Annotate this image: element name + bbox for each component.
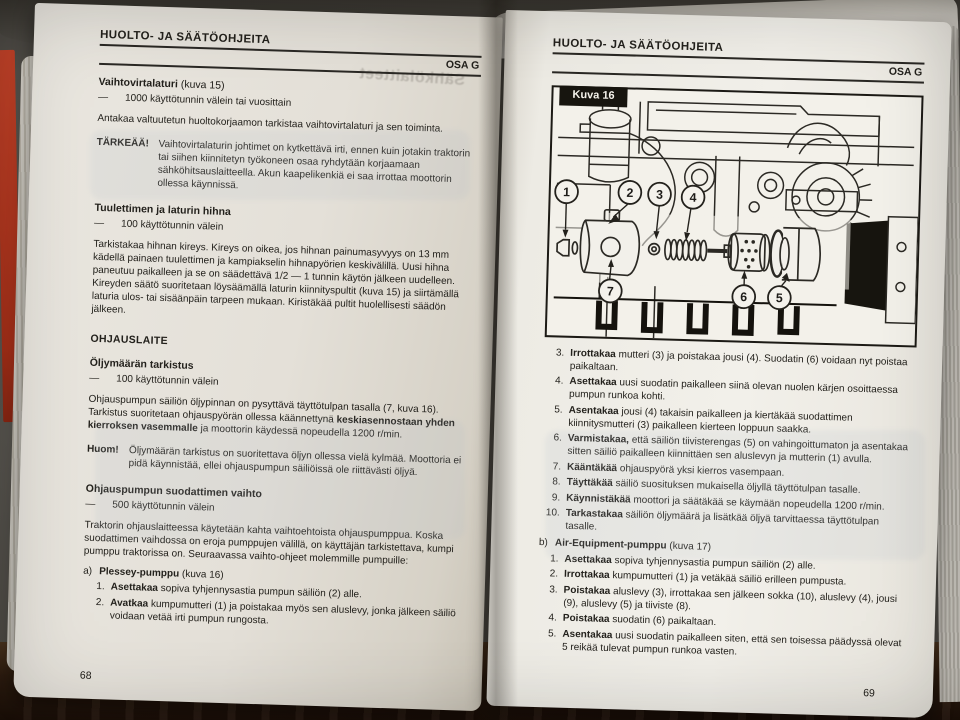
callout-1-number: 1	[563, 185, 570, 199]
paragraph: Tarkistakaa hihnan kireys. Kireys on oik…	[91, 237, 475, 327]
pump-body	[782, 227, 821, 280]
page-number-left: 68	[80, 670, 92, 683]
note-label: Huom!	[86, 442, 129, 469]
callout-6-number: 6	[740, 290, 747, 304]
air-equipment-steps: 1.Asettakaa sopiva tyhjennysastia pumpun…	[536, 552, 911, 663]
chapter-heading-steering: OHJAUSLAITE	[90, 332, 472, 357]
paragraph: Ohjauspumpun säiliön öljypinnan on pysyt…	[88, 392, 471, 443]
important-label: TÄRKEÄÄ!	[95, 135, 159, 189]
callout-4-number: 4	[689, 190, 696, 204]
callout-5-number: 5	[776, 291, 783, 305]
dash-bullet: —	[98, 90, 108, 103]
figure-16: Kuva 16	[545, 85, 924, 347]
paragraph: Antakaa valtuutetun huoltokorjaamon tark…	[97, 111, 479, 136]
note-text: Öljymäärän tarkistus on suoritettava ölj…	[128, 443, 469, 480]
left-page-content: HUOLTO- JA SÄÄTÖOHJEITA OSA G Vaihtovirt…	[13, 3, 503, 711]
right-page: HUOLTO- JA SÄÄTÖOHJEITA OSA G Kuva 16	[486, 10, 951, 718]
callout-7-number: 7	[607, 284, 614, 298]
dash-bullet: —	[89, 371, 99, 384]
pump-a-steps: 1. Asettakaa sopiva tyhjennysastia pumpu…	[82, 580, 465, 633]
right-page-header: HUOLTO- JA SÄÄTÖOHJEITA OSA G	[552, 37, 925, 83]
shadow-block	[844, 219, 888, 310]
left-page: Sähkölaitteet HUOLTO- JA SÄÄTÖOHJEITA OS…	[13, 3, 503, 711]
figure-16-label: Kuva 16	[559, 85, 628, 107]
note-block: Huom! Öljymäärän tarkistus on suoritetta…	[86, 442, 469, 480]
dash-bullet: —	[85, 497, 95, 510]
oil-pan-teeth	[553, 297, 837, 335]
important-note: TÄRKEÄÄ! Vaihtovirtalaturin johtimet on …	[95, 135, 478, 199]
dash-bullet: —	[94, 216, 104, 229]
figure-16-diagram: 1 2 3 4 5 6 7	[547, 87, 922, 345]
plessey-steps-continued: 3.Irrottakaa mutteri (3) ja poistakaa jo…	[539, 346, 916, 543]
figure-16-frame: 1 2 3 4 5 6 7	[545, 85, 924, 347]
callout-2-number: 2	[626, 185, 633, 199]
left-page-header: HUOLTO- JA SÄÄTÖOHJEITA OSA G	[99, 29, 482, 76]
important-text: Vaihtovirtalaturin johtimet on kytkettäv…	[157, 137, 478, 199]
bolt-plate	[886, 216, 919, 323]
paragraph: Traktorin ohjauslaitteessa käytetään kah…	[84, 518, 467, 569]
page-number-right: 69	[863, 687, 875, 700]
callout-3-number: 3	[656, 187, 663, 201]
right-page-content: HUOLTO- JA SÄÄTÖOHJEITA OSA G Kuva 16	[486, 10, 951, 718]
